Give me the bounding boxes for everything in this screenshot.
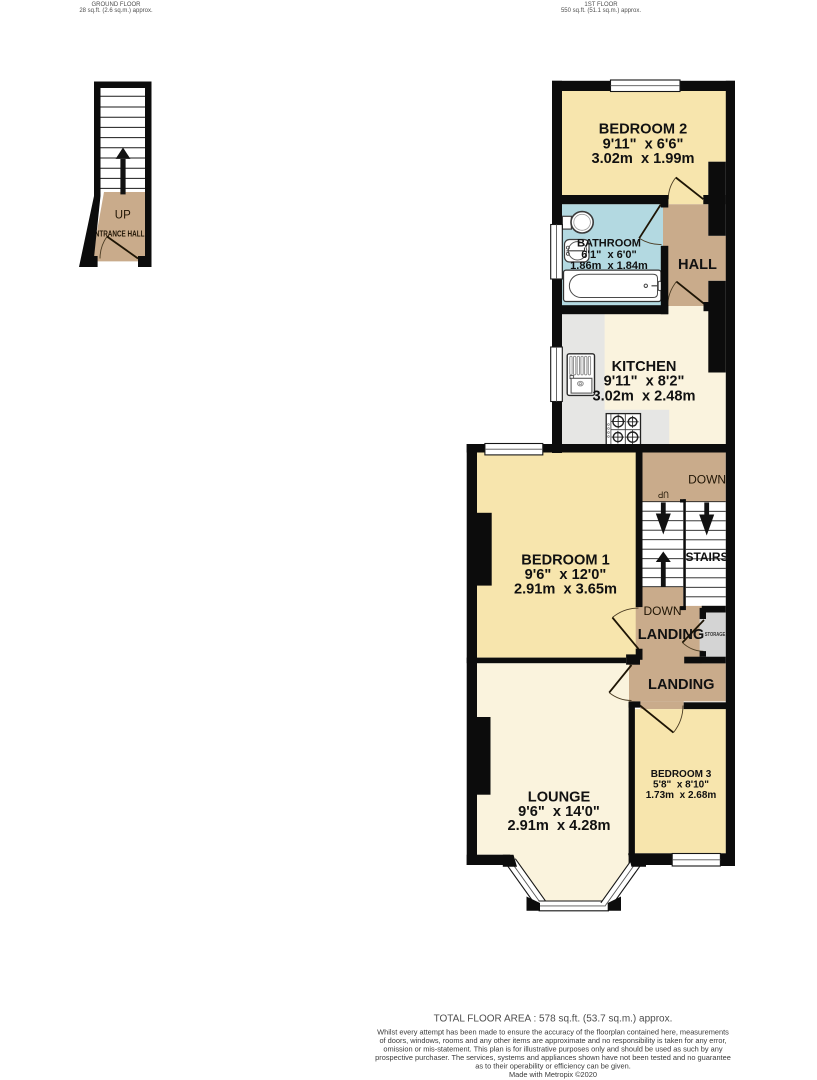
svg-text:BATHROOM: BATHROOM — [577, 238, 641, 250]
svg-text:STAIRS: STAIRS — [685, 550, 728, 564]
svg-text:3.02m x 2.48m: 3.02m x 2.48m — [592, 388, 695, 404]
svg-text:1.86m x 1.84m: 1.86m x 1.84m — [570, 260, 648, 272]
svg-text:DOWN: DOWN — [688, 472, 726, 486]
svg-text:TOTAL FLOOR AREA : 578 sq.ft.: TOTAL FLOOR AREA : 578 sq.ft. (53.7 sq.m… — [434, 1014, 673, 1025]
svg-text:2.91m x 4.28m: 2.91m x 4.28m — [507, 818, 610, 834]
svg-text:KITCHEN: KITCHEN — [612, 359, 677, 375]
svg-text:9'11" x 6'6": 9'11" x 6'6" — [603, 136, 684, 152]
svg-text:LOUNGE: LOUNGE — [528, 790, 591, 806]
svg-text:3.02m x 1.99m: 3.02m x 1.99m — [591, 151, 694, 167]
svg-text:BEDROOM 3: BEDROOM 3 — [651, 769, 712, 780]
svg-text:Made with Metropix ©2020: Made with Metropix ©2020 — [509, 1070, 597, 1079]
svg-text:1.73m x 2.68m: 1.73m x 2.68m — [646, 790, 717, 801]
svg-text:28 sq.ft. (2.6 sq.m.) approx.: 28 sq.ft. (2.6 sq.m.) approx. — [79, 8, 153, 14]
svg-text:550 sq.ft. (51.1 sq.m.) approx: 550 sq.ft. (51.1 sq.m.) approx. — [561, 8, 641, 14]
svg-text:UP: UP — [115, 210, 131, 222]
svg-text:LANDING: LANDING — [638, 627, 704, 643]
svg-text:STORAGE: STORAGE — [705, 632, 726, 638]
svg-text:ENTRANCE HALL: ENTRANCE HALL — [91, 230, 145, 239]
svg-text:HALL: HALL — [678, 257, 717, 273]
svg-text:9'11" x 8'2": 9'11" x 8'2" — [604, 374, 685, 390]
svg-text:1ST FLOOR: 1ST FLOOR — [584, 2, 618, 8]
svg-text:LANDING: LANDING — [648, 677, 714, 693]
svg-text:2.91m x 3.65m: 2.91m x 3.65m — [514, 582, 617, 598]
svg-text:DOWN: DOWN — [644, 604, 682, 618]
svg-text:UP: UP — [658, 489, 669, 499]
svg-text:BEDROOM 2: BEDROOM 2 — [599, 122, 687, 138]
svg-text:GROUND FLOOR: GROUND FLOOR — [91, 2, 141, 8]
svg-text:5'8" x 8'10": 5'8" x 8'10" — [653, 780, 709, 791]
